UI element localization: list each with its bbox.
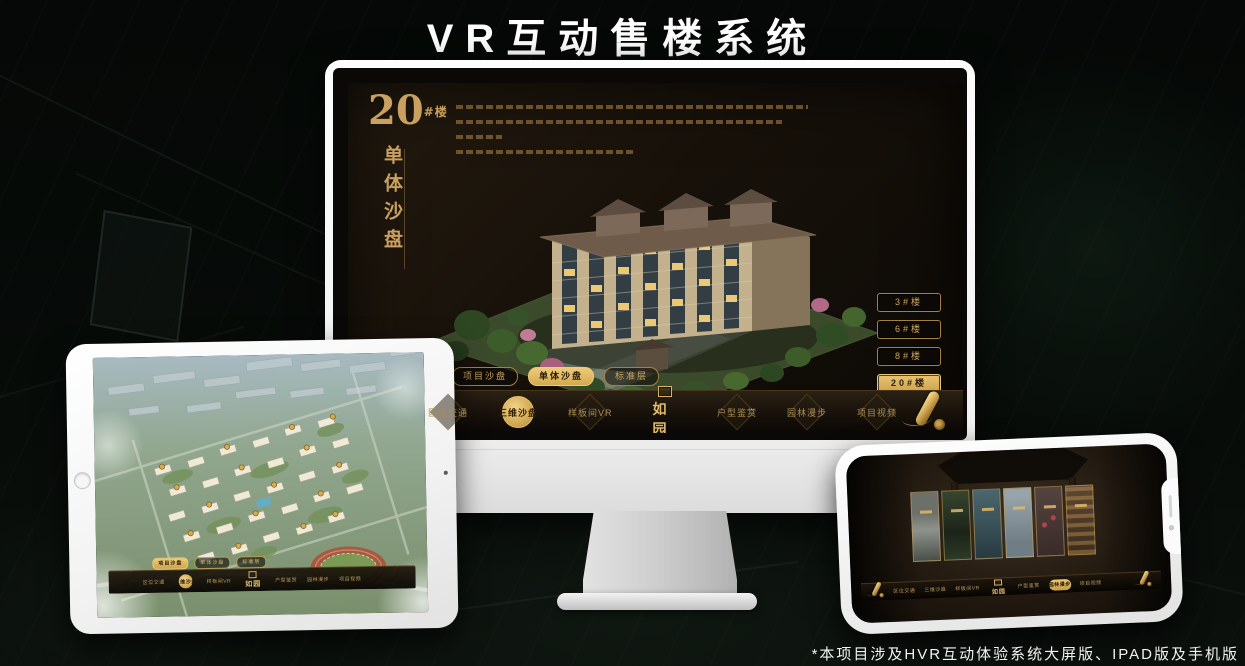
building-number-suffix: #楼 [424, 105, 448, 119]
nav-item-project-video[interactable]: 项目视频 [1080, 579, 1102, 587]
phone-speaker-icon [1169, 495, 1173, 517]
gallery-panel[interactable] [972, 488, 1003, 559]
gallery-panel[interactable] [1003, 487, 1034, 558]
description-text-line [456, 120, 782, 124]
brand-logo: 如园 [653, 386, 677, 434]
nav-item-3d-sandtable[interactable]: 三维沙盘 [496, 402, 540, 423]
ipad-app-screen: 项目沙盘 单体沙盘 标准层 区位交通 三维沙盘 样板间VR 如园 户型鉴赏 园林… [93, 352, 428, 618]
description-text-line [456, 105, 808, 109]
background-sign-panel [90, 210, 193, 342]
monitor-stand-neck [583, 511, 737, 597]
scroll-ornament-icon[interactable] [1137, 570, 1154, 587]
phone-camera-icon [1169, 525, 1174, 530]
ipad-home-button-icon [74, 472, 91, 489]
footnote-text: *本项目涉及HVR互动体验系统大屏版、IPAD版及手机版 [812, 643, 1239, 664]
monitor-stand-base [557, 593, 757, 610]
building-button-3[interactable]: 3#楼 [877, 293, 941, 312]
nav-item-showroom-vr[interactable]: 样板间VR [207, 577, 232, 584]
tab-project-sandtable[interactable]: 项目沙盘 [452, 367, 518, 386]
phone-app-screen: 区位交通 三维沙盘 样板间VR 如园 户型鉴赏 园林漫步 项目视频 [846, 443, 1173, 623]
nav-item-garden-walk[interactable]: 园林漫步 [307, 575, 329, 582]
brand-logo: 如园 [991, 579, 1006, 596]
logo-seal-icon [658, 386, 672, 397]
nav-item-floorplans[interactable]: 户型鉴赏 [715, 402, 759, 423]
pavilion-roof-silhouette [938, 447, 1089, 485]
ipad-camera-icon [444, 471, 448, 475]
logo-text: 如园 [653, 399, 677, 434]
building-selector: 3#楼 6#楼 8#楼 20#楼 [877, 293, 941, 401]
gallery-panel[interactable] [1034, 486, 1065, 557]
tab-standard-floor[interactable]: 标准层 [604, 367, 659, 386]
phone-notch [1161, 478, 1181, 555]
page-title: VR互动售楼系统 [0, 6, 1245, 64]
nav-item-3d-sandtable[interactable]: 三维沙盘 [175, 578, 197, 585]
nav-item-location[interactable]: 区位交通 [893, 587, 915, 595]
ipad-view-tabs: 项目沙盘 单体沙盘 标准层 [152, 556, 266, 570]
nav-item-garden-walk[interactable]: 园林漫步 [785, 402, 829, 423]
poster-canvas: VR互动售楼系统 20#楼 单体沙盘 [0, 0, 1245, 666]
gallery-panel[interactable] [941, 490, 972, 561]
building-button-8[interactable]: 8#楼 [877, 347, 941, 366]
ipad-tab-single-sandtable[interactable]: 单体沙盘 [194, 557, 230, 570]
nav-item-floorplans[interactable]: 户型鉴赏 [275, 576, 297, 583]
building-button-6[interactable]: 6#楼 [877, 320, 941, 339]
nav-item-3d-sandtable[interactable]: 三维沙盘 [924, 586, 946, 594]
tab-single-sandtable[interactable]: 单体沙盘 [528, 367, 594, 386]
logo-text: 如园 [245, 579, 261, 589]
nav-item-location[interactable]: 区位交通 [143, 578, 165, 585]
nav-item-floorplans[interactable]: 户型鉴赏 [1018, 582, 1040, 590]
building-number-heading: 20#楼 [368, 91, 448, 131]
building-number: 20 [368, 87, 424, 134]
ipad-tab-standard-floor[interactable]: 标准层 [236, 556, 266, 569]
brand-logo: 如园 [245, 571, 261, 589]
gallery-panel[interactable] [1065, 484, 1096, 555]
view-tabs: 项目沙盘 单体沙盘 标准层 [452, 367, 659, 386]
scene-gallery [910, 484, 1096, 562]
nav-item-garden-walk[interactable]: 园林漫步 [1049, 580, 1071, 588]
nav-item-project-video[interactable]: 项目视频 [339, 575, 361, 582]
nav-item-location[interactable]: 区位交通 [426, 402, 470, 423]
scroll-ornament-icon[interactable] [909, 389, 949, 431]
logo-seal-icon [249, 571, 257, 578]
nav-item-showroom-vr[interactable]: 样板间VR [955, 584, 980, 592]
logo-seal-icon [994, 579, 1002, 585]
nav-item-showroom-vr[interactable]: 样板间VR [566, 402, 615, 423]
logo-text: 如园 [992, 586, 1006, 596]
phone-device: 区位交通 三维沙盘 样板间VR 如园 户型鉴赏 园林漫步 项目视频 [834, 432, 1184, 635]
ipad-device: 项目沙盘 单体沙盘 标准层 区位交通 三维沙盘 样板间VR 如园 户型鉴赏 园林… [65, 338, 458, 635]
gallery-panel[interactable] [910, 491, 941, 562]
nav-item-project-video[interactable]: 项目视频 [855, 402, 899, 423]
ipad-tab-project-sandtable[interactable]: 项目沙盘 [152, 557, 188, 570]
scroll-ornament-icon[interactable] [869, 581, 886, 598]
